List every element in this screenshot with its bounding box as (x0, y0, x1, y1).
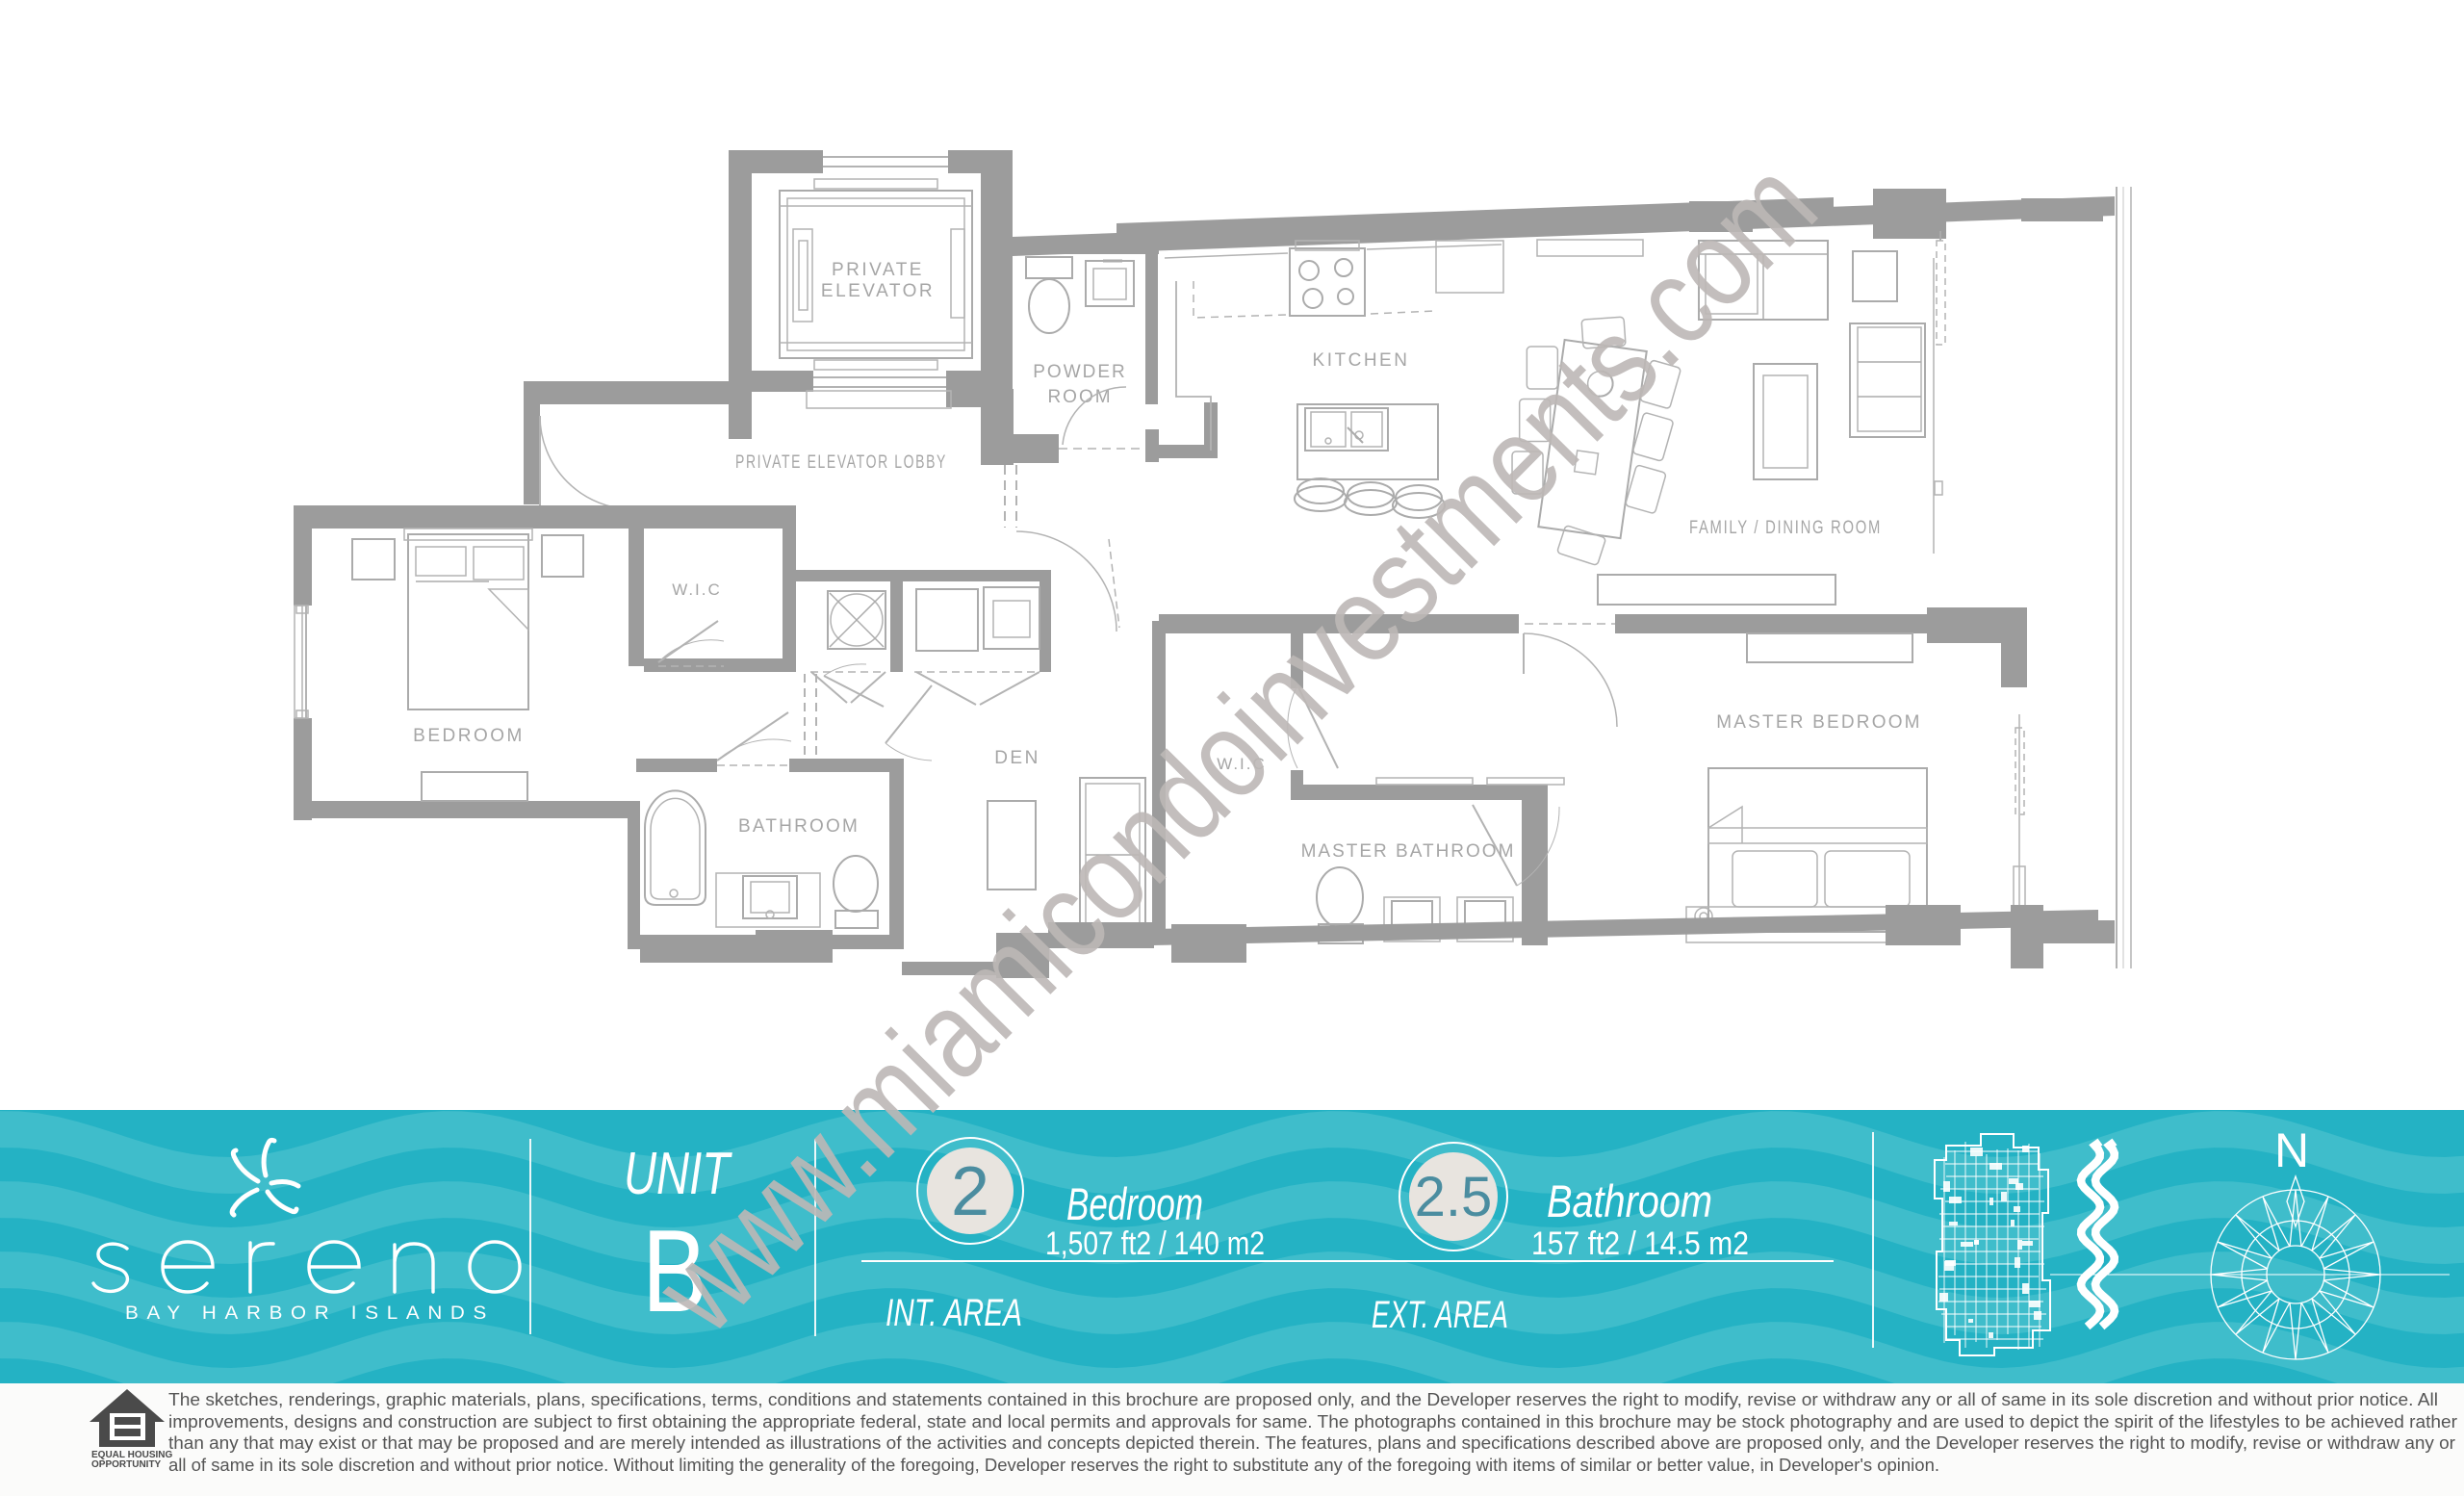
svg-text:BEDROOM: BEDROOM (413, 726, 525, 746)
svg-text:1,507 ft2 / 140 m2: 1,507 ft2 / 140 m2 (1045, 1225, 1265, 1262)
svg-text:2.5: 2.5 (1415, 1166, 1493, 1228)
svg-text:all of same in its sole discre: all of same in its sole discretion and w… (168, 1456, 1939, 1475)
svg-text:FAMILY / DINING ROOM: FAMILY / DINING ROOM (1689, 518, 1882, 538)
svg-text:BATHROOM: BATHROOM (738, 816, 860, 837)
svg-text:improvements, designs and cons: improvements, designs and construction a… (168, 1412, 2457, 1432)
svg-text:Bedroom: Bedroom (1066, 1178, 1203, 1229)
svg-text:ROOM: ROOM (1047, 387, 1112, 407)
svg-text:MASTER BATHROOM: MASTER BATHROOM (1301, 841, 1516, 862)
svg-text:BAY HARBOR ISLANDS: BAY HARBOR ISLANDS (125, 1303, 495, 1324)
svg-text:POWDER: POWDER (1033, 362, 1127, 382)
svg-text:KITCHEN: KITCHEN (1313, 350, 1410, 371)
svg-text:ELEVATOR: ELEVATOR (821, 281, 935, 301)
svg-text:2: 2 (951, 1153, 989, 1230)
svg-text:than any that may exist or tha: than any that may exist or that may be p… (168, 1433, 2455, 1453)
svg-text:INT. AREA: INT. AREA (885, 1292, 1022, 1334)
svg-text:W.I.C: W.I.C (672, 580, 722, 599)
svg-text:EXT. AREA: EXT. AREA (1372, 1294, 1508, 1336)
svg-text:DEN: DEN (994, 748, 1040, 768)
svg-text:OPPORTUNITY: OPPORTUNITY (91, 1459, 162, 1470)
svg-text:157 ft2 / 14.5 m2: 157 ft2 / 14.5 m2 (1531, 1225, 1749, 1262)
svg-text:PRIVATE ELEVATOR LOBBY: PRIVATE ELEVATOR LOBBY (735, 452, 947, 473)
svg-text:Bathroom: Bathroom (1547, 1175, 1712, 1226)
svg-text:The sketches, renderings, grap: The sketches, renderings, graphic materi… (168, 1390, 2438, 1409)
svg-text:MASTER BEDROOM: MASTER BEDROOM (1716, 712, 1921, 733)
svg-text:PRIVATE: PRIVATE (832, 260, 924, 280)
svg-text:N: N (2274, 1123, 2309, 1177)
